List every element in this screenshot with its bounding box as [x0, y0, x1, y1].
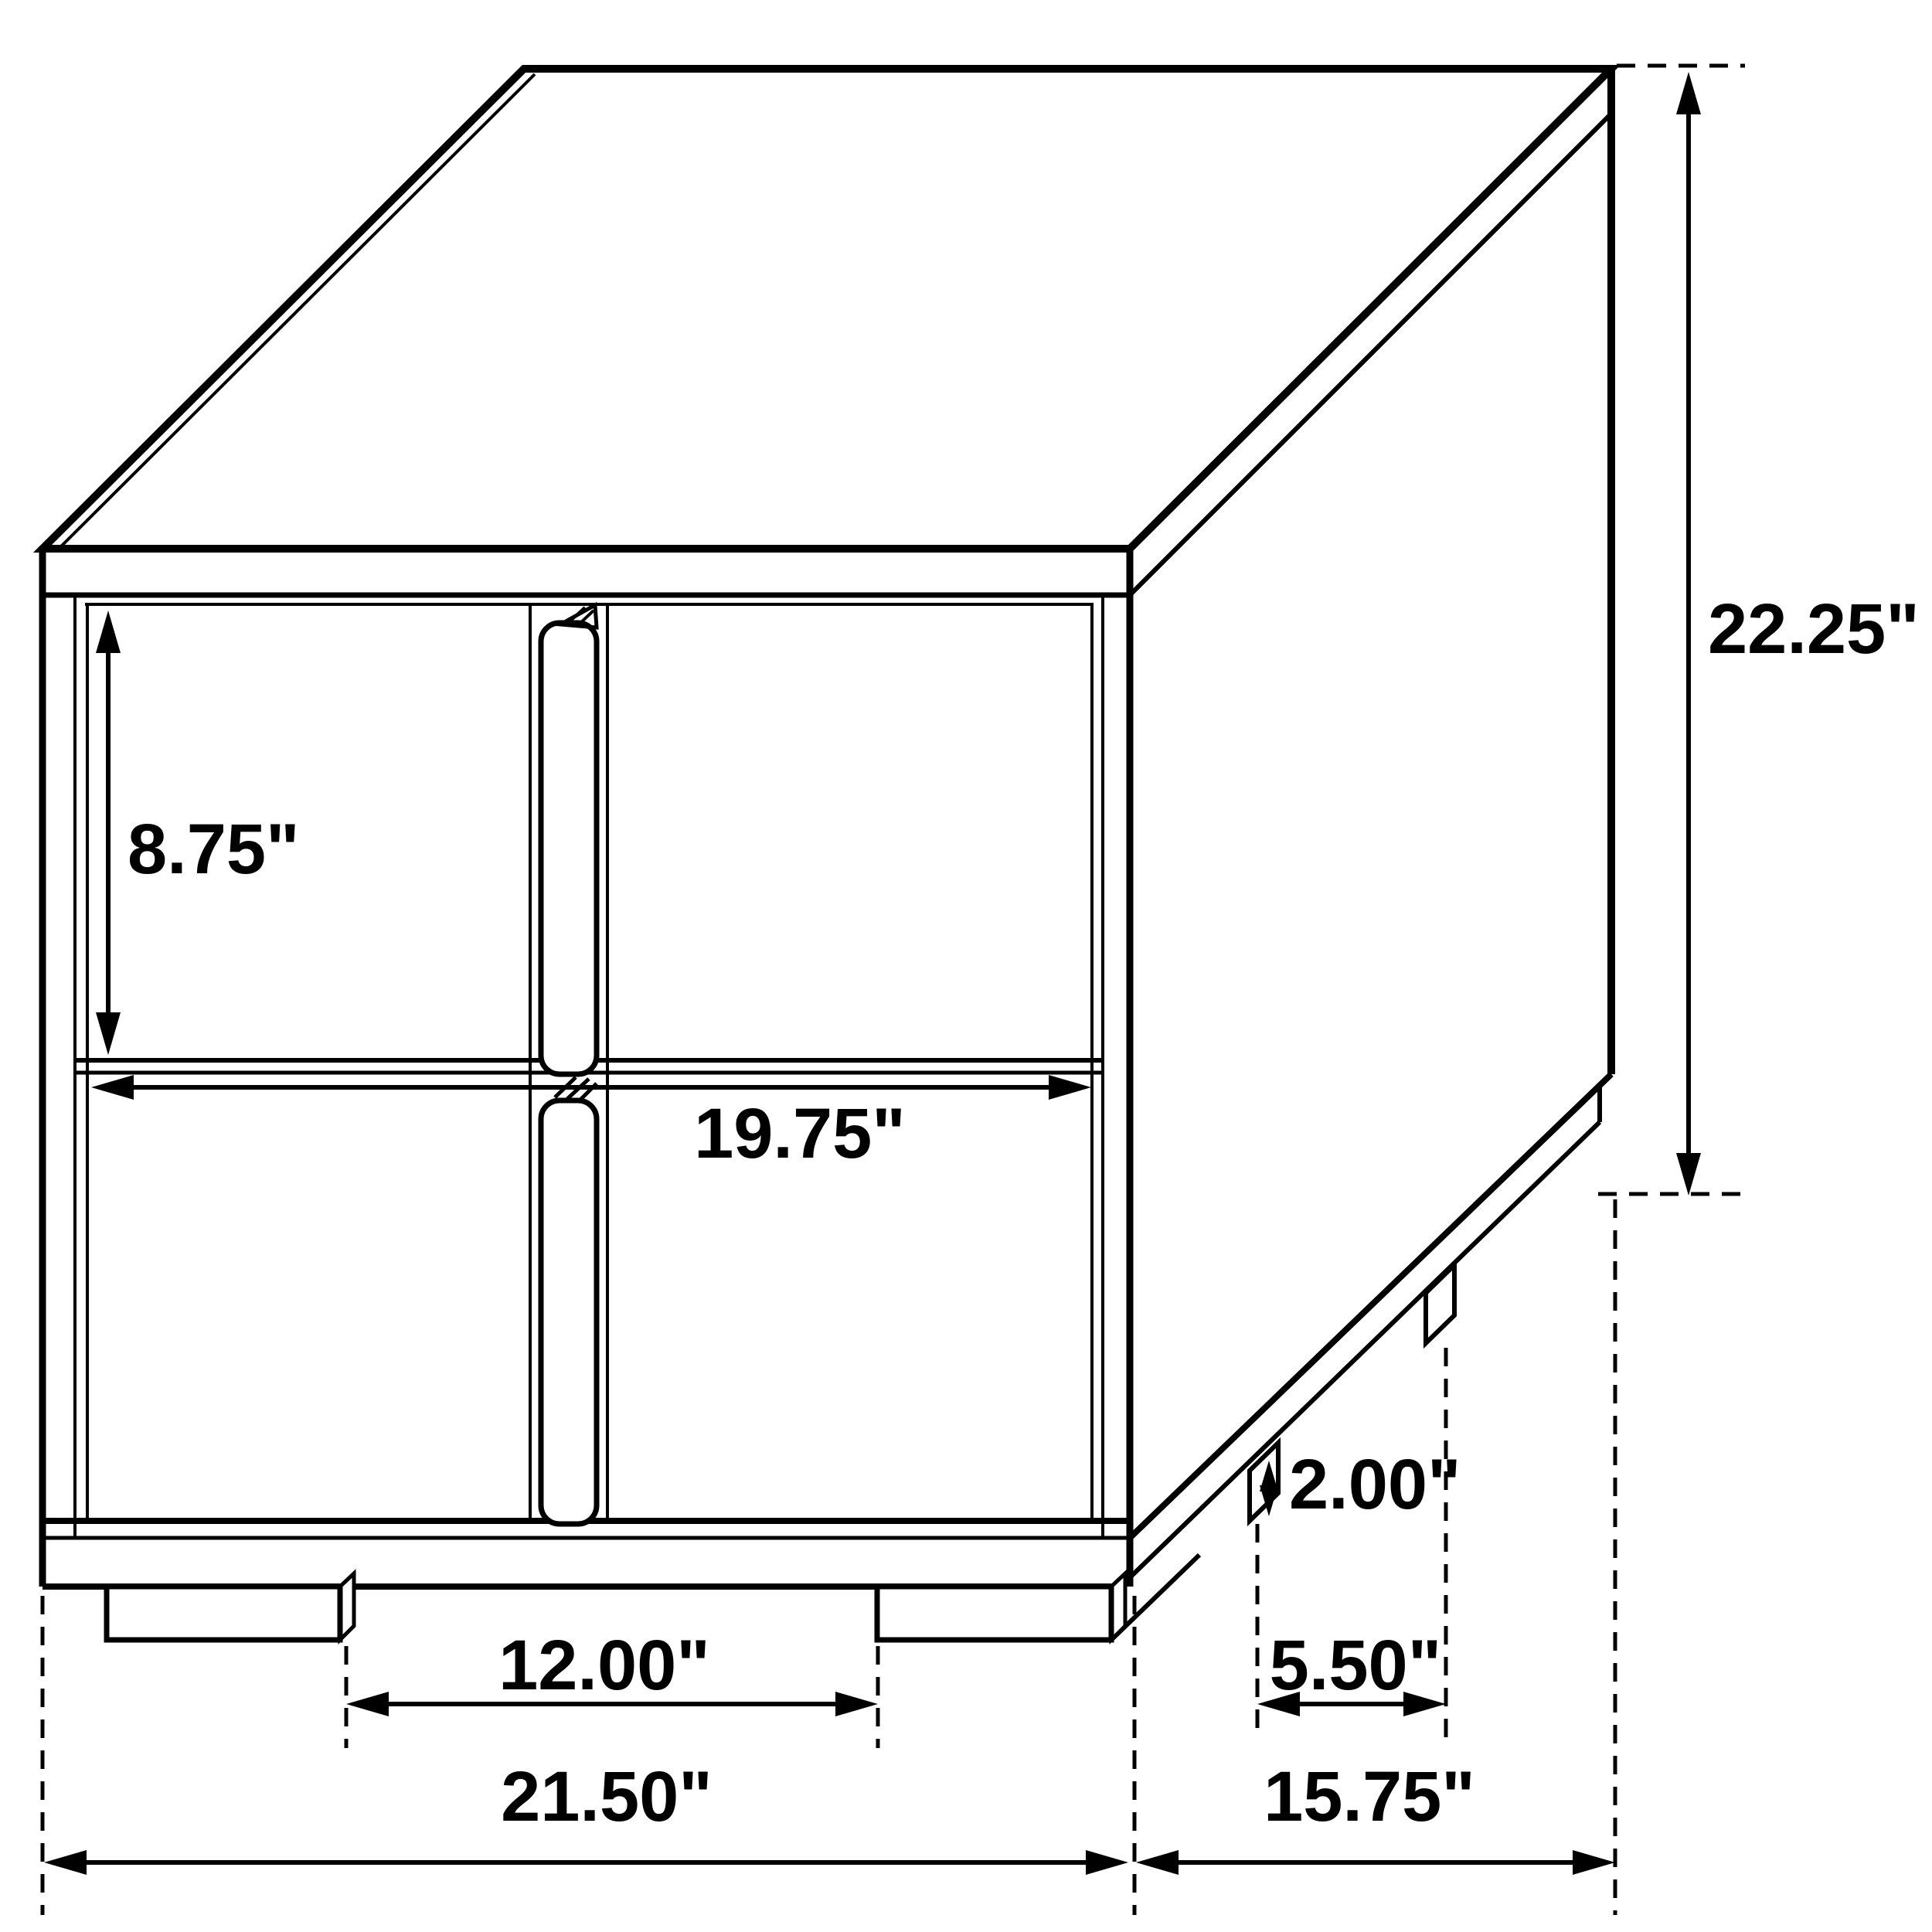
dimension-front-leg-spacing: 12.00" — [346, 1626, 878, 1748]
arrowhead-right — [1049, 1075, 1091, 1100]
label-drawer-width: 19.75" — [694, 1094, 906, 1173]
label-drawer-height: 8.75" — [128, 810, 300, 889]
arrowhead-up — [1676, 72, 1701, 114]
arrowhead-left — [1136, 1850, 1179, 1875]
dimension-overall-depth: 15.75" — [1136, 1199, 1615, 1915]
front-left-leg — [107, 1587, 340, 1640]
arrowhead-left — [44, 1850, 87, 1875]
arrowhead-left — [91, 1075, 134, 1100]
top-face — [43, 69, 1611, 549]
front-right-leg — [877, 1587, 1111, 1640]
arrowhead-up — [96, 611, 121, 653]
arrowhead-right — [1086, 1850, 1128, 1875]
label-overall-depth: 15.75" — [1264, 1757, 1475, 1836]
lower-handle-bar — [541, 1100, 597, 1524]
arrowhead-down — [1676, 1153, 1701, 1196]
arrowhead-right — [1573, 1850, 1615, 1875]
label-overall-width: 21.50" — [501, 1757, 713, 1836]
label-front-leg-spacing: 12.00" — [498, 1626, 710, 1705]
top-band-right-edge — [1130, 114, 1611, 595]
nightstand-dimension-diagram: 8.75" 19.75" 22.25" 2.00" 5.50" — [0, 0, 1932, 1932]
dimension-base-height: 2.00" — [1260, 1445, 1461, 1524]
dimension-drawer-height: 8.75" — [96, 611, 300, 1055]
technical-drawing-page: 8.75" 19.75" 22.25" 2.00" 5.50" — [0, 0, 1932, 1932]
arrowhead-left — [346, 1692, 389, 1716]
upper-handle-bar — [541, 623, 597, 1074]
label-side-leg-spacing: 5.50" — [1270, 1626, 1442, 1705]
dimension-side-leg-spacing: 5.50" — [1257, 1348, 1446, 1740]
dimension-overall-height: 22.25" — [1598, 66, 1920, 1196]
side-back-leg — [1426, 1265, 1454, 1343]
label-base-height: 2.00" — [1289, 1445, 1461, 1524]
arrowhead-down — [96, 1012, 121, 1055]
top-left-inner-edge — [57, 74, 535, 550]
upper-handle-hatch — [560, 605, 597, 628]
label-overall-height: 22.25" — [1708, 590, 1920, 668]
arrowhead-right — [835, 1692, 878, 1716]
